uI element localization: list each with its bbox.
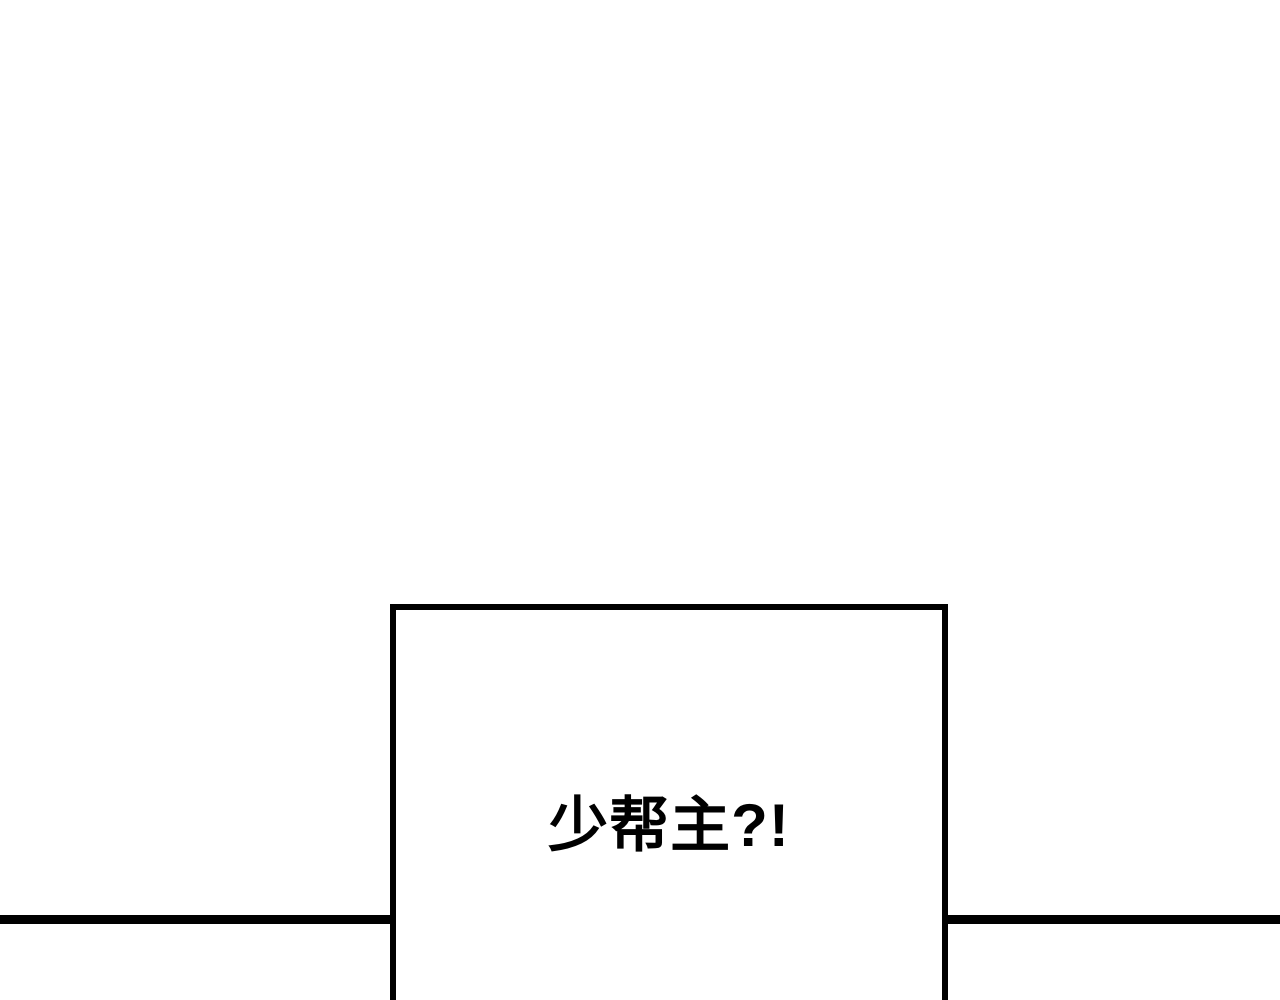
- comic-panel-page: 少帮主?!: [0, 0, 1280, 1000]
- dialogue-text: 少帮主?!: [396, 796, 942, 856]
- dialogue-box: 少帮主?!: [390, 604, 948, 1000]
